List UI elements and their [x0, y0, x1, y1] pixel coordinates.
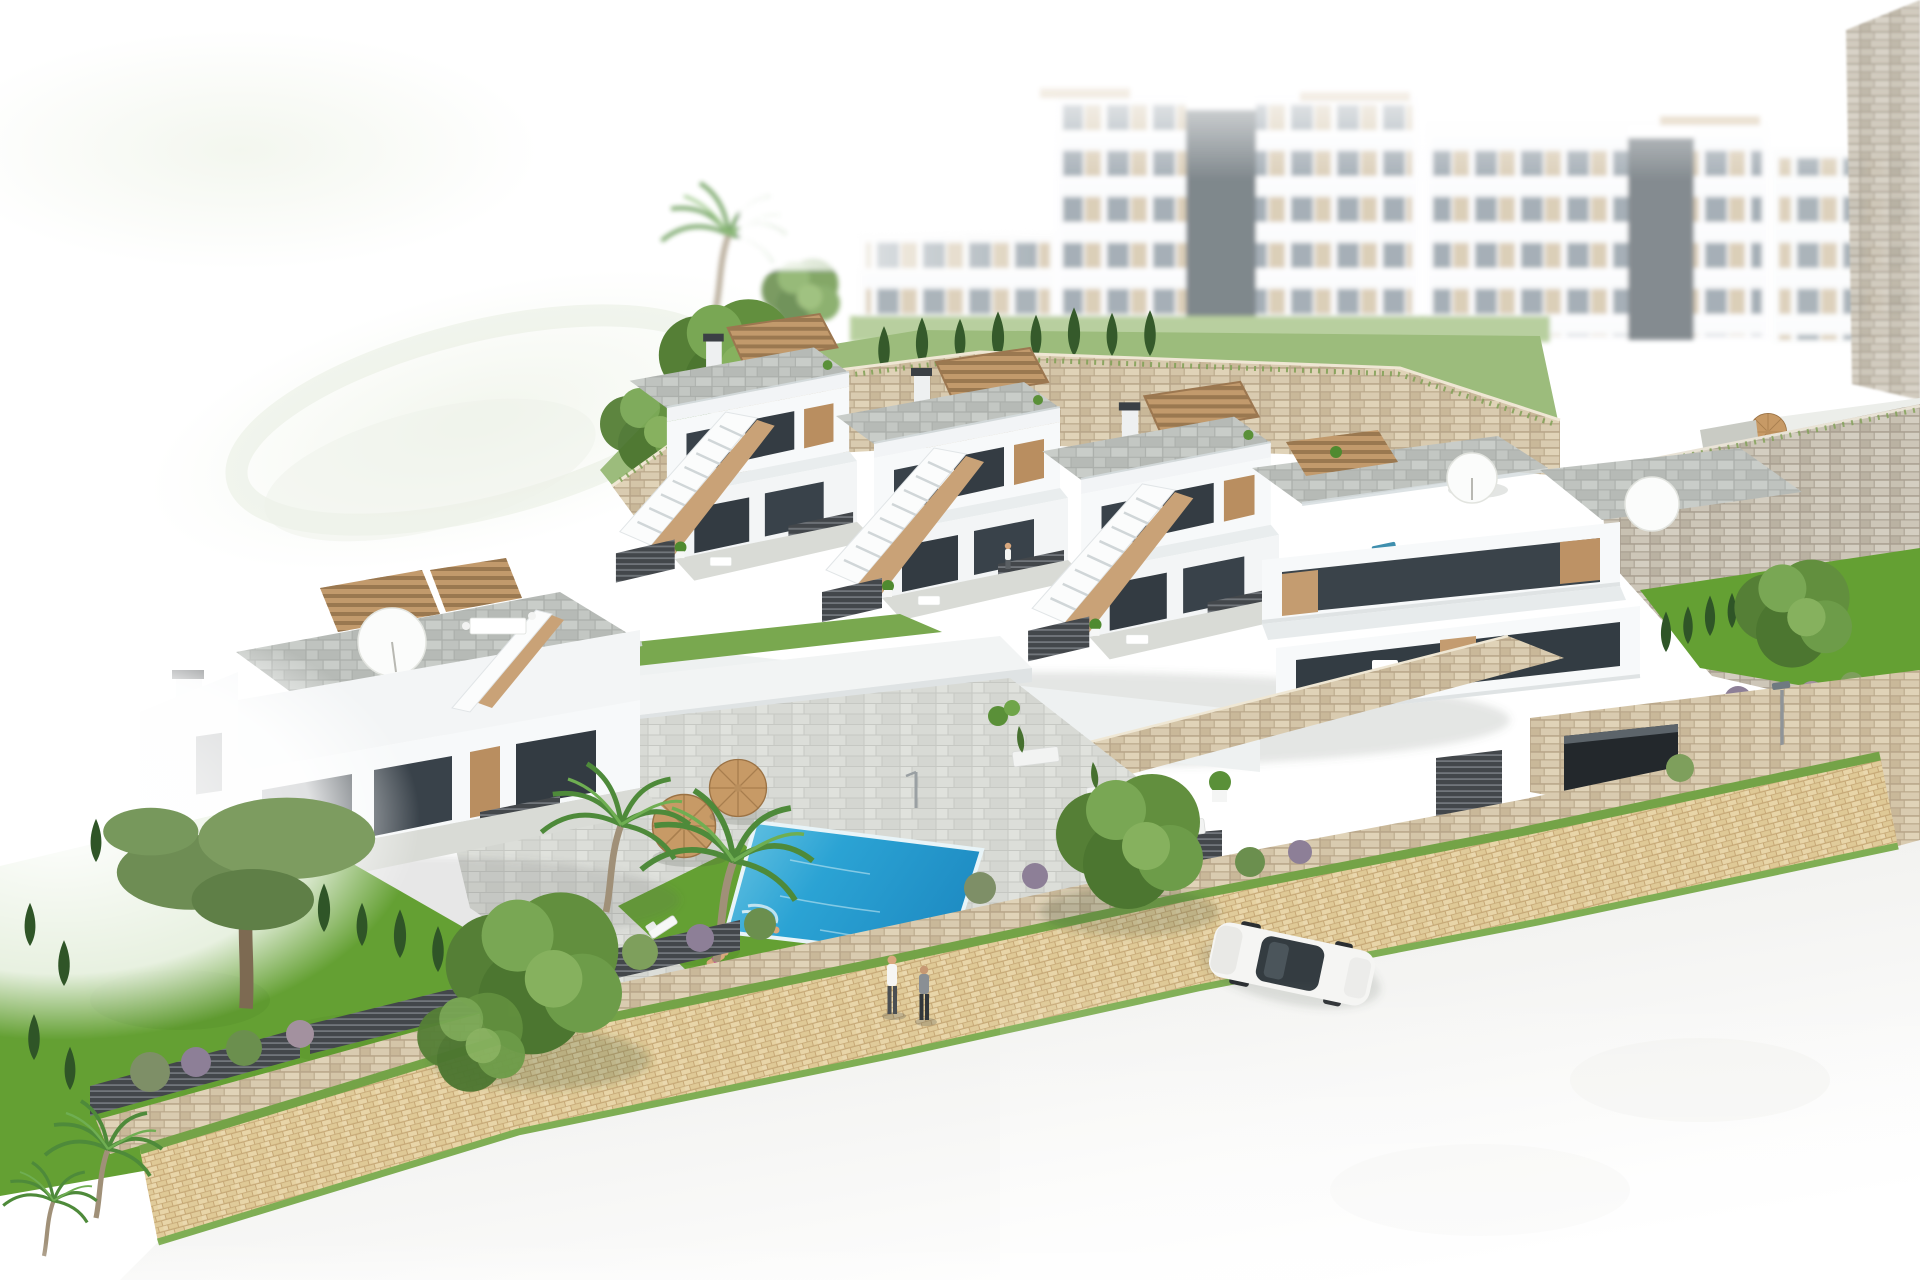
aerial-render: [0, 0, 1920, 1280]
terrace-dining-set: [470, 618, 526, 634]
roof-umbrella-white: [358, 608, 426, 676]
stone-wall-topright: [1846, 0, 1920, 400]
person-on-stairs: [1005, 543, 1011, 569]
render-image: [0, 0, 1920, 1280]
background-apartments: [662, 60, 1920, 344]
